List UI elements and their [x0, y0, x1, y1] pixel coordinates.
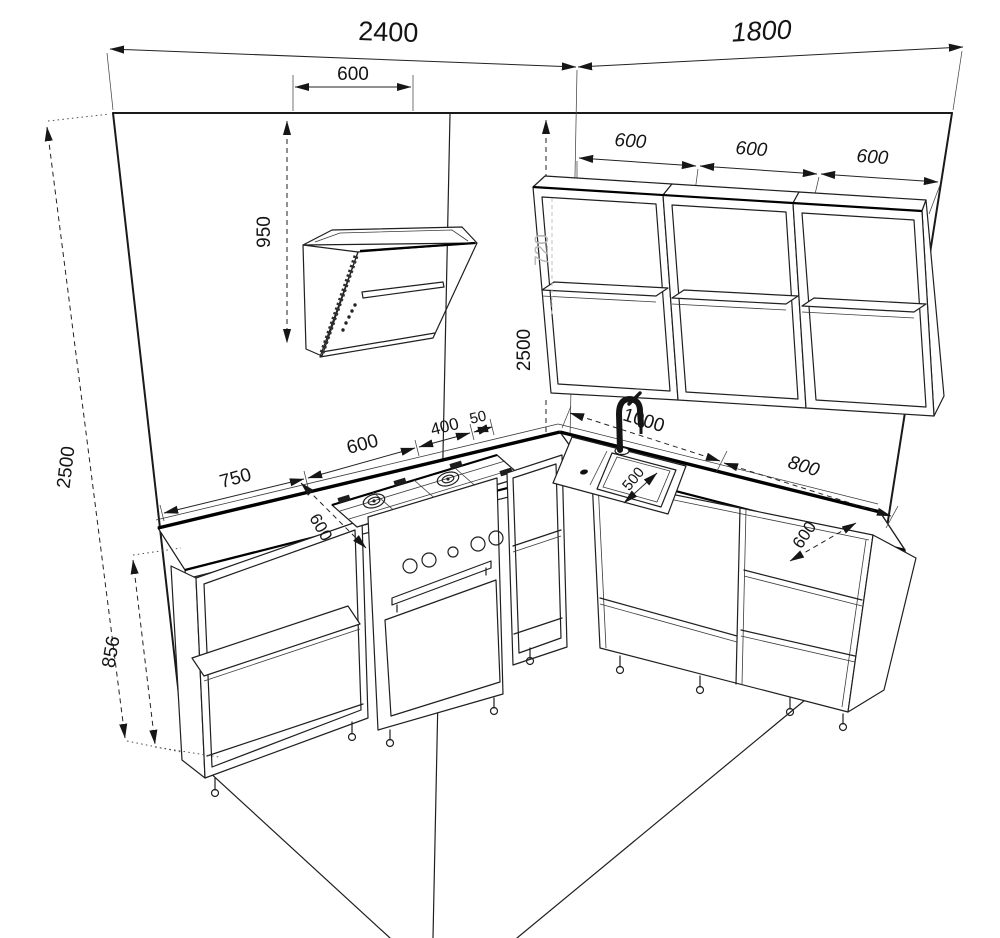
dim-label-2500-corner: 2500	[514, 329, 535, 371]
dim-line-50	[474, 427, 492, 432]
left-wall-edge	[113, 113, 186, 758]
corner-base-cabinet	[507, 455, 567, 665]
dim-label-hood-600: 600	[337, 64, 369, 85]
dim-label-wc2-600: 600	[735, 138, 769, 161]
dim-label-50: 50	[468, 407, 488, 427]
dim-line	[821, 174, 938, 182]
range-hood	[303, 227, 477, 357]
tick	[415, 440, 419, 456]
tick	[716, 451, 727, 473]
dim-hood-height: 950	[254, 121, 287, 343]
dim-label-wc3-600: 600	[856, 146, 890, 169]
hood-handle-slot	[362, 282, 444, 298]
dim-label-wc1-600: 600	[614, 130, 648, 153]
hood-button	[353, 303, 356, 306]
floor-line-left	[183, 748, 390, 938]
dim-label-720: 720	[532, 234, 553, 266]
dim-label-800: 800	[785, 452, 822, 481]
extension-line	[107, 53, 113, 110]
extension-line	[953, 51, 962, 110]
hood-button	[350, 309, 353, 312]
dim-label-cooktop-600: 600	[345, 430, 381, 458]
extension-line	[48, 114, 110, 121]
dim-label-950: 950	[254, 216, 275, 248]
dim-line	[579, 158, 696, 166]
dim-label-2400: 2400	[358, 16, 419, 48]
dim-label-400: 400	[429, 414, 461, 439]
dim-hood-width: 600	[293, 64, 413, 111]
dim-label-750: 750	[218, 464, 254, 492]
kitchen-technical-drawing: 2400 1800 600 950 2500 600 600 600	[0, 0, 1000, 938]
hood-left-side	[303, 245, 358, 356]
dim-right-wall-width: 1800	[578, 14, 963, 110]
dim-label-2500-left: 2500	[54, 445, 80, 490]
hood-button	[347, 315, 350, 318]
hood-bottom-edge	[322, 333, 435, 352]
dim-label-856: 856	[98, 635, 124, 670]
drawing-canvas: 2400 1800 600 950 2500 600 600 600	[0, 0, 1000, 938]
dim-line	[700, 166, 817, 174]
dim-label-1800: 1800	[731, 14, 793, 47]
oven	[368, 478, 503, 747]
hood-button	[341, 328, 344, 331]
wall-cabinets	[533, 176, 944, 416]
oven-front	[368, 478, 503, 730]
dim-line	[578, 47, 963, 67]
hood-button	[344, 321, 347, 324]
extension-line	[127, 741, 181, 752]
tick	[562, 406, 571, 428]
dim-line	[133, 560, 155, 744]
